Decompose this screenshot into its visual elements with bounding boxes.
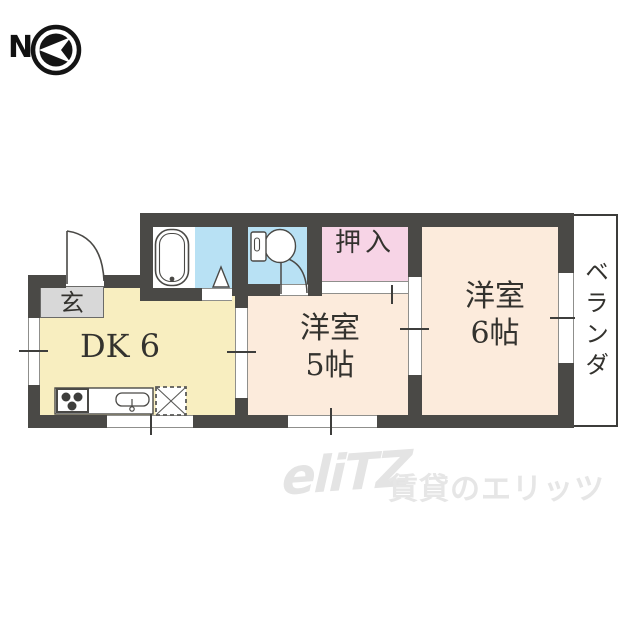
toilet-room [248, 227, 307, 284]
room5-name: 洋室 [268, 310, 392, 347]
veranda-label: ベランダ [578, 259, 613, 383]
wall-segment [408, 213, 422, 277]
wall-segment [28, 275, 66, 288]
window-tick [19, 350, 48, 352]
toilet-door-opening [280, 284, 308, 296]
room6-size: 6帖 [433, 315, 557, 352]
dk-label: DK 6 [55, 328, 185, 364]
entrance-door-swing-icon [67, 231, 104, 284]
compass-arrow-icon [30, 24, 82, 76]
wall-segment [558, 213, 574, 273]
room5-label: 洋室 5帖 [268, 310, 392, 384]
wall-segment [28, 385, 40, 428]
floorplan-screenshot: N ベランダ [0, 0, 640, 640]
window-tick [227, 351, 256, 353]
genkan-label: 玄 [40, 288, 104, 318]
oshiire-label: 押入 [322, 228, 408, 258]
wall-segment [140, 213, 574, 227]
wall-segment [104, 275, 153, 288]
window-room5-bottom [288, 415, 377, 428]
bathtub-zone [153, 227, 195, 288]
wall-segment [307, 213, 322, 296]
room5-size: 5帖 [268, 347, 392, 384]
bathroom-door-opening [202, 288, 232, 301]
wall-segment [377, 415, 574, 428]
veranda-area: ベランダ [572, 214, 618, 427]
wall-segment [140, 288, 202, 301]
sliding-door-oshiire [322, 281, 408, 294]
room6-label: 洋室 6帖 [433, 278, 557, 352]
window-tick [391, 285, 393, 304]
wall-segment [235, 398, 248, 417]
sliding-door-room5-room6 [408, 277, 422, 375]
window-tick [330, 408, 332, 435]
bathroom-floor [195, 227, 232, 288]
watermark-text: 賃貸のエリッツ [388, 464, 605, 508]
room6-name: 洋室 [433, 278, 557, 315]
sliding-door-dk-room5 [235, 308, 248, 398]
wall-segment [235, 296, 248, 308]
window-tick [400, 328, 429, 330]
window-tick [150, 408, 152, 435]
wall-segment [245, 284, 280, 296]
